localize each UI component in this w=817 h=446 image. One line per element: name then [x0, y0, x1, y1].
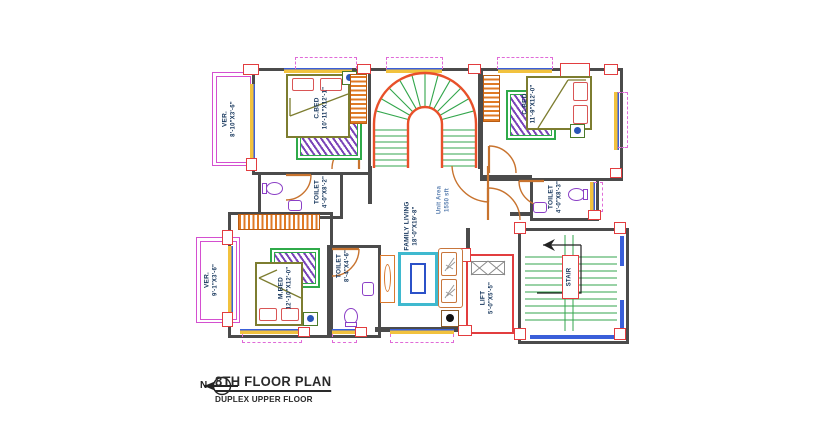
projection-dash-right-1: [618, 92, 628, 148]
column: [604, 64, 618, 75]
toilet-wc-tank: [345, 322, 357, 327]
room-label-bed-top-left: C.BED10'-11"X12'-1": [314, 87, 331, 129]
projection-dash-right-2: [594, 182, 603, 212]
toilet-basin: [288, 200, 302, 211]
projection-dash-bottom-1: [242, 334, 302, 343]
column-duct-box: [560, 63, 590, 77]
plan-subtitle: DUPLEX UPPER FLOOR: [215, 394, 331, 404]
bedside-table: [303, 312, 318, 326]
room-label-toilet-right: TOILET4'-0"X8'-3": [548, 181, 565, 213]
wardrobe: [238, 214, 320, 230]
wall-stair-left-stub: [368, 166, 372, 204]
coffee-table: [410, 263, 426, 294]
toilet-wc: [266, 182, 283, 195]
column: [298, 327, 310, 337]
pillow: [292, 78, 314, 91]
vanity-counter: [380, 255, 395, 303]
central-stair-drawing: [372, 70, 478, 168]
toilet-wc-tank: [583, 189, 588, 200]
bedside-lamp: [574, 127, 581, 134]
room-label-toilet-bottom: TOILET8'-4"X4'-6": [336, 250, 353, 282]
wardrobe: [483, 75, 500, 122]
unit-area-label: Unit Area1550 sft: [437, 186, 452, 214]
column: [458, 325, 472, 336]
lift-hatch: [471, 261, 505, 275]
window-veranda-bottom: [228, 246, 233, 316]
toilet-basin: [533, 202, 547, 213]
north-indicator: N: [200, 380, 205, 391]
column: [222, 312, 233, 327]
column: [222, 230, 233, 245]
projection-dash-bottom-2: [332, 334, 357, 343]
column: [355, 327, 367, 337]
door-family-living: [448, 164, 490, 204]
vanity-mirror: [384, 264, 391, 292]
column: [357, 64, 371, 74]
bedside-lamp: [307, 315, 314, 322]
column: [610, 168, 622, 178]
pillow: [259, 308, 277, 321]
room-label-family-living: FAMILY LIVING18'-0"X19'-8": [404, 201, 421, 250]
room-label-bed-master: M.BED12'-10"X12'-0": [278, 267, 295, 310]
stair-label: STAIR: [566, 268, 574, 287]
living-rug-cyan: [398, 252, 438, 306]
column: [246, 158, 257, 171]
projection-dash-top-2: [386, 57, 443, 69]
projection-dash-bottom-3: [390, 334, 454, 343]
projection-dash-top-3: [497, 57, 553, 69]
room-label-bed-top-right: C.BED11'-9"X12'-0": [522, 85, 539, 124]
plan-title: 8TH FLOOR PLAN: [215, 374, 331, 392]
projection-dash-top-1: [295, 57, 357, 69]
window-stair-bottom: [530, 335, 614, 339]
title-block: N 8TH FLOOR PLAN DUPLEX UPPER FLOOR: [200, 374, 336, 404]
toilet-wc-tank: [262, 183, 267, 194]
bedside-table: [570, 124, 585, 138]
door-toilet-left: [284, 173, 314, 201]
window-veranda-top: [250, 84, 255, 162]
pillow: [281, 308, 299, 321]
side-table: [441, 310, 459, 327]
side-table-lamp: [446, 314, 454, 322]
floor-plan-page: { "title_block": { "title": "8TH FLOOR P…: [0, 0, 817, 446]
sofa: [438, 248, 463, 308]
room-label-veranda-top: VER.8'-10"X3'-6": [222, 101, 239, 137]
sofa-seat: [441, 279, 457, 303]
sofa-seat: [441, 252, 457, 276]
column: [243, 64, 259, 75]
wardrobe: [350, 74, 367, 124]
room-label-toilet-left: TOILET4'-0"X8'-2": [314, 176, 331, 208]
pillow: [573, 105, 588, 124]
door-hall: [486, 186, 524, 222]
room-label-veranda-bottom: VER.9'-1"X3'-6": [204, 264, 221, 296]
pillow: [573, 82, 588, 101]
lift-label: LIFT5'-0"X5'-5": [480, 282, 497, 314]
column: [588, 210, 601, 220]
toilet-basin: [362, 282, 374, 296]
